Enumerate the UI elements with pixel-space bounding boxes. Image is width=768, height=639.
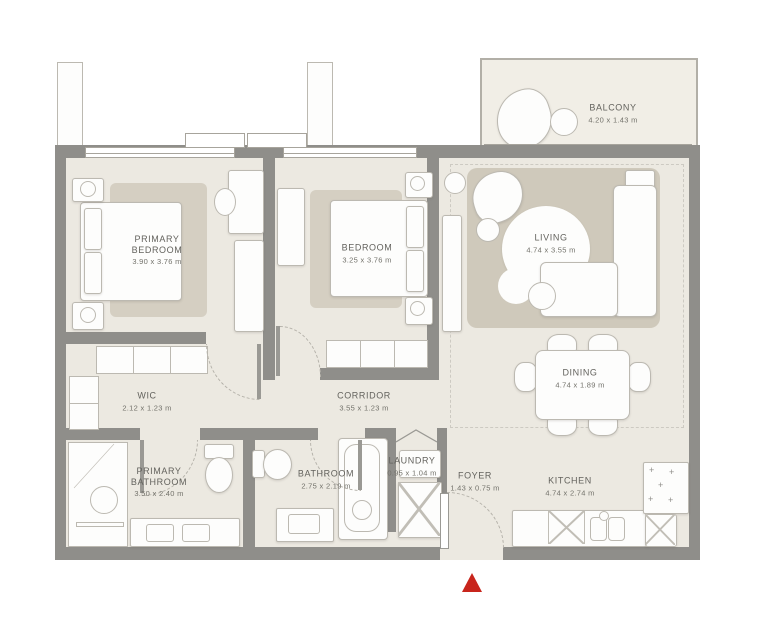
closet-shelf [133, 346, 171, 374]
room-dims: 4.74 x 1.89 m [535, 380, 625, 389]
toilet-bowl [205, 457, 233, 493]
appliance-x [645, 514, 675, 545]
room-name: LIVING [506, 232, 596, 243]
room-label-bedroom: BEDROOM 3.25 x 3.76 m [322, 242, 412, 264]
wall [55, 158, 66, 560]
room-name: FOYER [435, 470, 515, 481]
room-label-balcony: BALCONY 4.20 x 1.43 m [568, 102, 658, 124]
room-dims: 3.50 x 2.40 m [119, 489, 199, 498]
sofa-armrest [528, 282, 556, 310]
faucet [599, 511, 609, 521]
side-table [476, 218, 500, 242]
wall [503, 547, 700, 560]
shower-door-line [68, 442, 126, 492]
room-name: CORRIDOR [319, 390, 409, 401]
room-label-living: LIVING 4.74 x 3.55 m [506, 232, 596, 254]
closet-shelf [96, 346, 134, 374]
closet-shelf [69, 403, 99, 430]
wall [263, 158, 275, 332]
lamp [80, 181, 96, 197]
closet-shelf [360, 340, 395, 368]
shower-drain [90, 486, 118, 514]
floor-plan-canvas: + + + + + PRIMARY BEDROOM 3.90 x 3.76 m … [0, 0, 768, 639]
wall [55, 547, 440, 560]
lamp [410, 176, 425, 191]
burner-icon: + [658, 481, 663, 490]
kitchen-sink [608, 517, 625, 541]
facade-fin [57, 62, 83, 150]
plant-pot [444, 172, 466, 194]
window-ledge [185, 133, 245, 148]
wall [243, 428, 255, 547]
room-label-wic: WIC 2.12 x 1.23 m [102, 390, 192, 412]
room-name: BALCONY [568, 102, 658, 113]
room-dims: 3.90 x 3.76 m [115, 257, 199, 266]
room-label-bathroom: BATHROOM 2.75 x 2.19 m [286, 468, 366, 490]
tv-unit [442, 215, 462, 332]
window [85, 147, 235, 158]
burner-icon: + [648, 495, 653, 504]
washing-machine-x [398, 482, 440, 536]
closet-shelf [69, 376, 99, 404]
wall [66, 332, 206, 344]
room-dims: 4.74 x 3.55 m [506, 245, 596, 254]
room-name: PRIMARY BEDROOM [115, 234, 199, 255]
room-dims: 3.25 x 3.76 m [322, 255, 412, 264]
wall [255, 428, 318, 440]
room-name: LAUNDRY [372, 455, 452, 466]
sink [182, 524, 210, 542]
room-label-primary-bedroom: PRIMARY BEDROOM 3.90 x 3.76 m [115, 234, 199, 266]
room-label-foyer: FOYER 1.43 x 0.75 m [435, 470, 515, 492]
room-dims: 4.20 x 1.43 m [568, 115, 658, 124]
burner-icon: + [668, 496, 673, 505]
dishwasher-x [549, 511, 584, 544]
room-label-corridor: CORRIDOR 3.55 x 1.23 m [319, 390, 409, 412]
sofa [613, 185, 657, 317]
window [283, 147, 417, 158]
room-name: BEDROOM [322, 242, 412, 253]
bathtub-drain [352, 500, 372, 520]
room-label-kitchen: KITCHEN 4.74 x 2.74 m [525, 475, 615, 497]
closet-shelf [170, 346, 208, 374]
entry-threshold [440, 547, 503, 560]
room-dims: 3.55 x 1.23 m [319, 403, 409, 412]
closet-shelf [326, 340, 361, 368]
bifold-door [396, 428, 437, 444]
room-label-dining: DINING 4.74 x 1.89 m [535, 367, 625, 389]
pillow [84, 252, 102, 294]
wall [263, 332, 275, 380]
room-dims: 4.74 x 2.74 m [525, 488, 615, 497]
room-name: PRIMARY BATHROOM [119, 466, 199, 487]
lamp [80, 307, 96, 323]
room-label-primary-bathroom: PRIMARY BATHROOM 3.50 x 2.40 m [119, 466, 199, 498]
closet-shelf [394, 340, 428, 368]
pillow [84, 208, 102, 250]
wardrobe [234, 240, 264, 332]
room-name: KITCHEN [525, 475, 615, 486]
towel-bar [76, 522, 124, 527]
room-dims: 2.75 x 2.19 m [286, 481, 366, 490]
room-dims: 2.12 x 1.23 m [102, 403, 192, 412]
counter-divider [584, 511, 585, 544]
room-name: WIC [102, 390, 192, 401]
room-dims: 1.43 x 0.75 m [435, 483, 515, 492]
burner-icon: + [649, 466, 654, 475]
window-ledge [247, 133, 307, 148]
room-name: DINING [535, 367, 625, 378]
lamp [410, 301, 425, 316]
wall [689, 158, 700, 560]
room-name: BATHROOM [286, 468, 366, 479]
wardrobe [277, 188, 305, 266]
wall [320, 368, 439, 380]
sink [288, 514, 320, 534]
desk-chair [214, 188, 236, 216]
facade-fin [307, 62, 333, 150]
dining-chair [627, 362, 651, 392]
burner-icon: + [669, 468, 674, 477]
sink [146, 524, 174, 542]
entrance-marker-icon [462, 573, 482, 592]
